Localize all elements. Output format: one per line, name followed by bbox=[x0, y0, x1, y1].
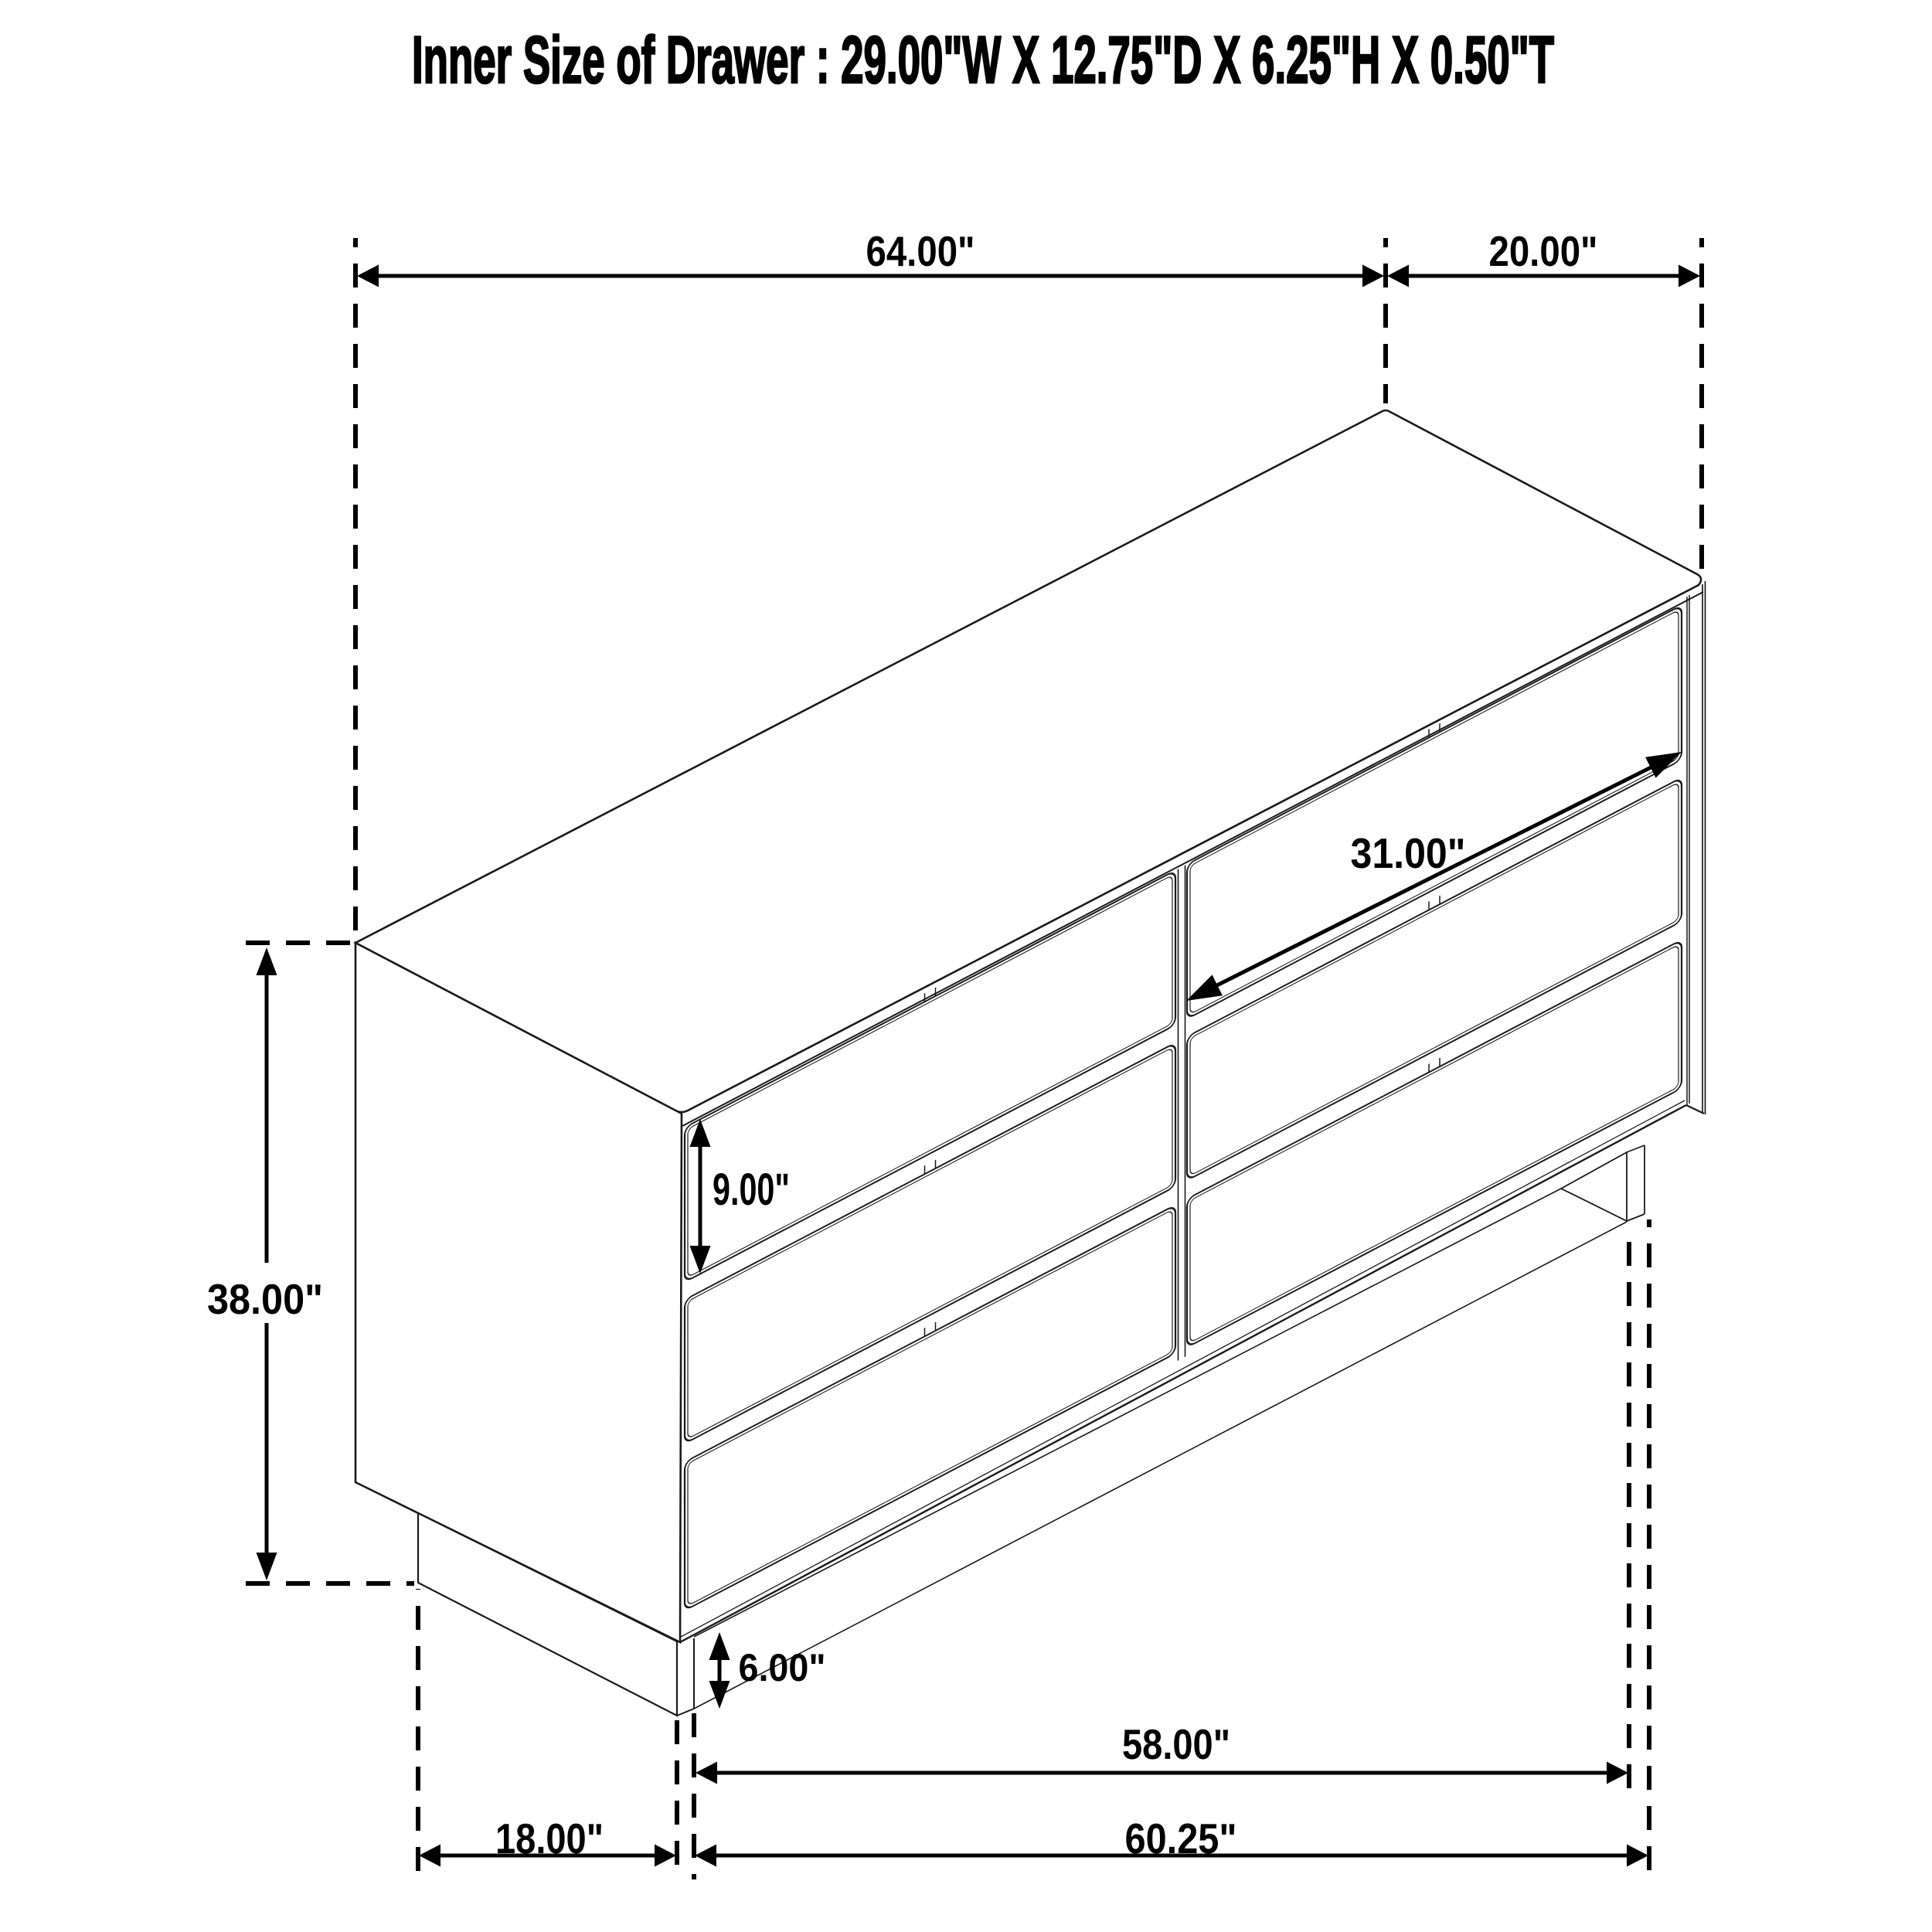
svg-text:60.25": 60.25" bbox=[1125, 1815, 1237, 1862]
svg-text:18.00": 18.00" bbox=[495, 1815, 604, 1862]
svg-text:64.00": 64.00" bbox=[866, 227, 975, 275]
svg-text:31.00": 31.00" bbox=[1351, 829, 1466, 877]
svg-text:20.00": 20.00" bbox=[1489, 227, 1598, 275]
svg-text:Inner Size of Drawer : 29.00"W: Inner Size of Drawer : 29.00"W X 12.75"D… bbox=[412, 23, 1554, 97]
svg-text:6.00": 6.00" bbox=[739, 1646, 826, 1689]
svg-text:38.00": 38.00" bbox=[207, 1275, 323, 1323]
svg-text:9.00": 9.00" bbox=[713, 1165, 790, 1215]
svg-text:58.00": 58.00" bbox=[1122, 1720, 1230, 1768]
